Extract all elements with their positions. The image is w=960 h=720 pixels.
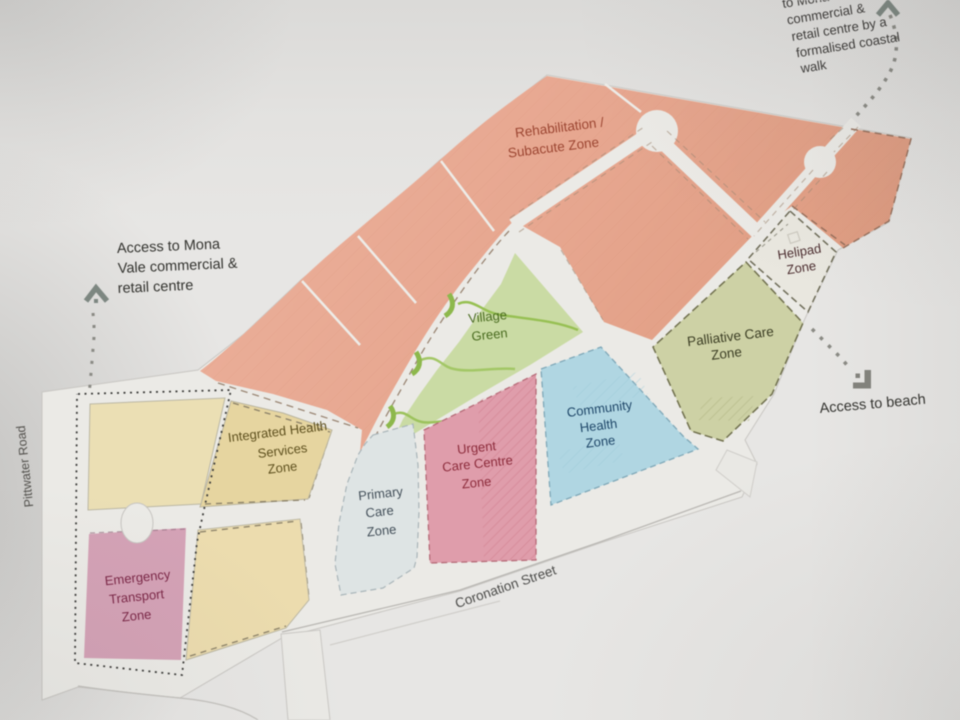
svg-text:Zone: Zone (461, 474, 492, 492)
svg-text:Zone: Zone (366, 522, 397, 540)
svg-text:Access to Mona: Access to Mona (117, 236, 222, 257)
svg-text:Access to beach: Access to beach (819, 392, 926, 417)
svg-text:Zone: Zone (121, 607, 152, 625)
svg-text:Pittwater Road: Pittwater Road (14, 425, 36, 508)
svg-text:retail centre: retail centre (117, 278, 193, 297)
svg-text:Care: Care (365, 503, 395, 521)
svg-text:Vale commercial &: Vale commercial & (117, 256, 238, 277)
svg-text:walk: walk (799, 57, 829, 76)
